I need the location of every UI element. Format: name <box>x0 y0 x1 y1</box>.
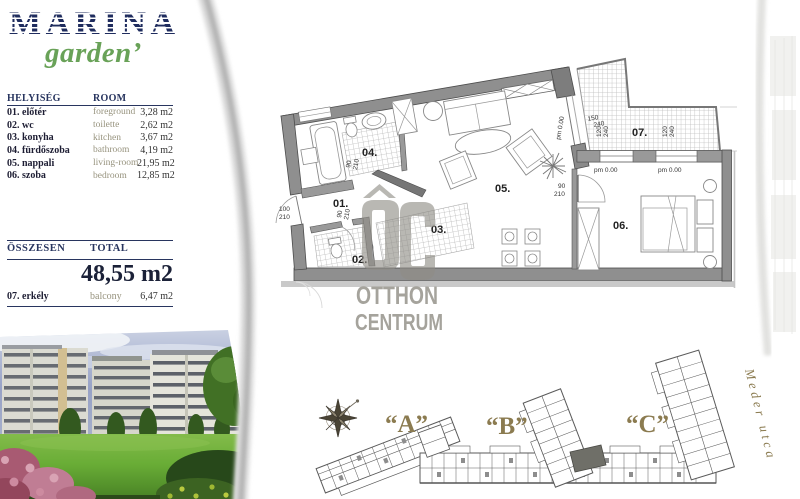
svg-text:OTTHON: OTTHON <box>356 282 438 310</box>
svg-text:05.: 05. <box>495 183 510 195</box>
svg-text:240: 240 <box>603 126 610 137</box>
svg-text:pm 0.00: pm 0.00 <box>594 167 618 174</box>
svg-text:240: 240 <box>669 126 676 137</box>
svg-text:07.: 07. <box>632 127 647 139</box>
svg-text:Meder utca: Meder utca <box>742 366 780 462</box>
svg-text:pm 0.00: pm 0.00 <box>658 167 682 174</box>
svg-text:CENTRUM: CENTRUM <box>355 309 443 335</box>
svg-text:210: 210 <box>343 208 352 220</box>
svg-text:100: 100 <box>279 206 290 213</box>
svg-text:“B”: “B” <box>486 413 528 440</box>
svg-text:120: 120 <box>596 126 603 137</box>
svg-text:90: 90 <box>558 183 566 190</box>
svg-text:120: 120 <box>662 126 669 137</box>
svg-text:210: 210 <box>554 191 565 198</box>
svg-text:04.: 04. <box>362 147 377 159</box>
svg-text:06.: 06. <box>613 220 628 232</box>
svg-text:01.: 01. <box>333 198 348 210</box>
svg-text:“A”: “A” <box>385 411 428 438</box>
svg-text:“C”: “C” <box>626 411 669 438</box>
svg-text:210: 210 <box>279 214 290 221</box>
svg-text:pm 0.00: pm 0.00 <box>555 116 566 141</box>
